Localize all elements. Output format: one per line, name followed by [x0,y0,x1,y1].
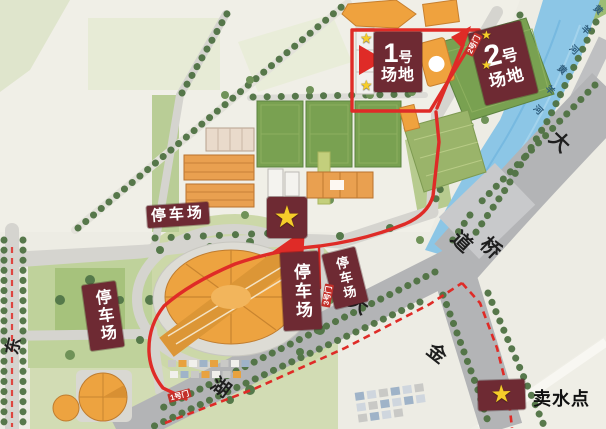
water-point-star-icon: ★ [274,203,301,233]
water-point-marker: ★ [267,197,307,238]
water-star-icon-road-top: ★ [481,29,492,41]
field2-suffix: 号 [500,47,520,67]
legend-water-point-label: 卖水点 [533,385,590,411]
parking-label-north: 停车场 [146,202,209,228]
venue-map: 1号 场地 2号 场地 停车场 停车场 停车场 停车场 1号门 3号门 2号门 … [0,0,606,429]
field1-line2: 场地 [381,68,415,85]
field1-label: 1号 场地 [374,32,422,92]
water-star-icon-road-bottom: ★ [481,59,492,71]
water-star-icon-field1-bottom: ★ [360,78,373,92]
field1-number: 1 [383,38,398,68]
parking-label-center: 停车场 [280,251,322,331]
legend-star-icon: ★ [490,383,512,408]
water-star-icon-field1-top: ★ [360,31,373,45]
field1-suffix: 号 [399,49,413,65]
legend-star-box: ★ [477,379,525,411]
